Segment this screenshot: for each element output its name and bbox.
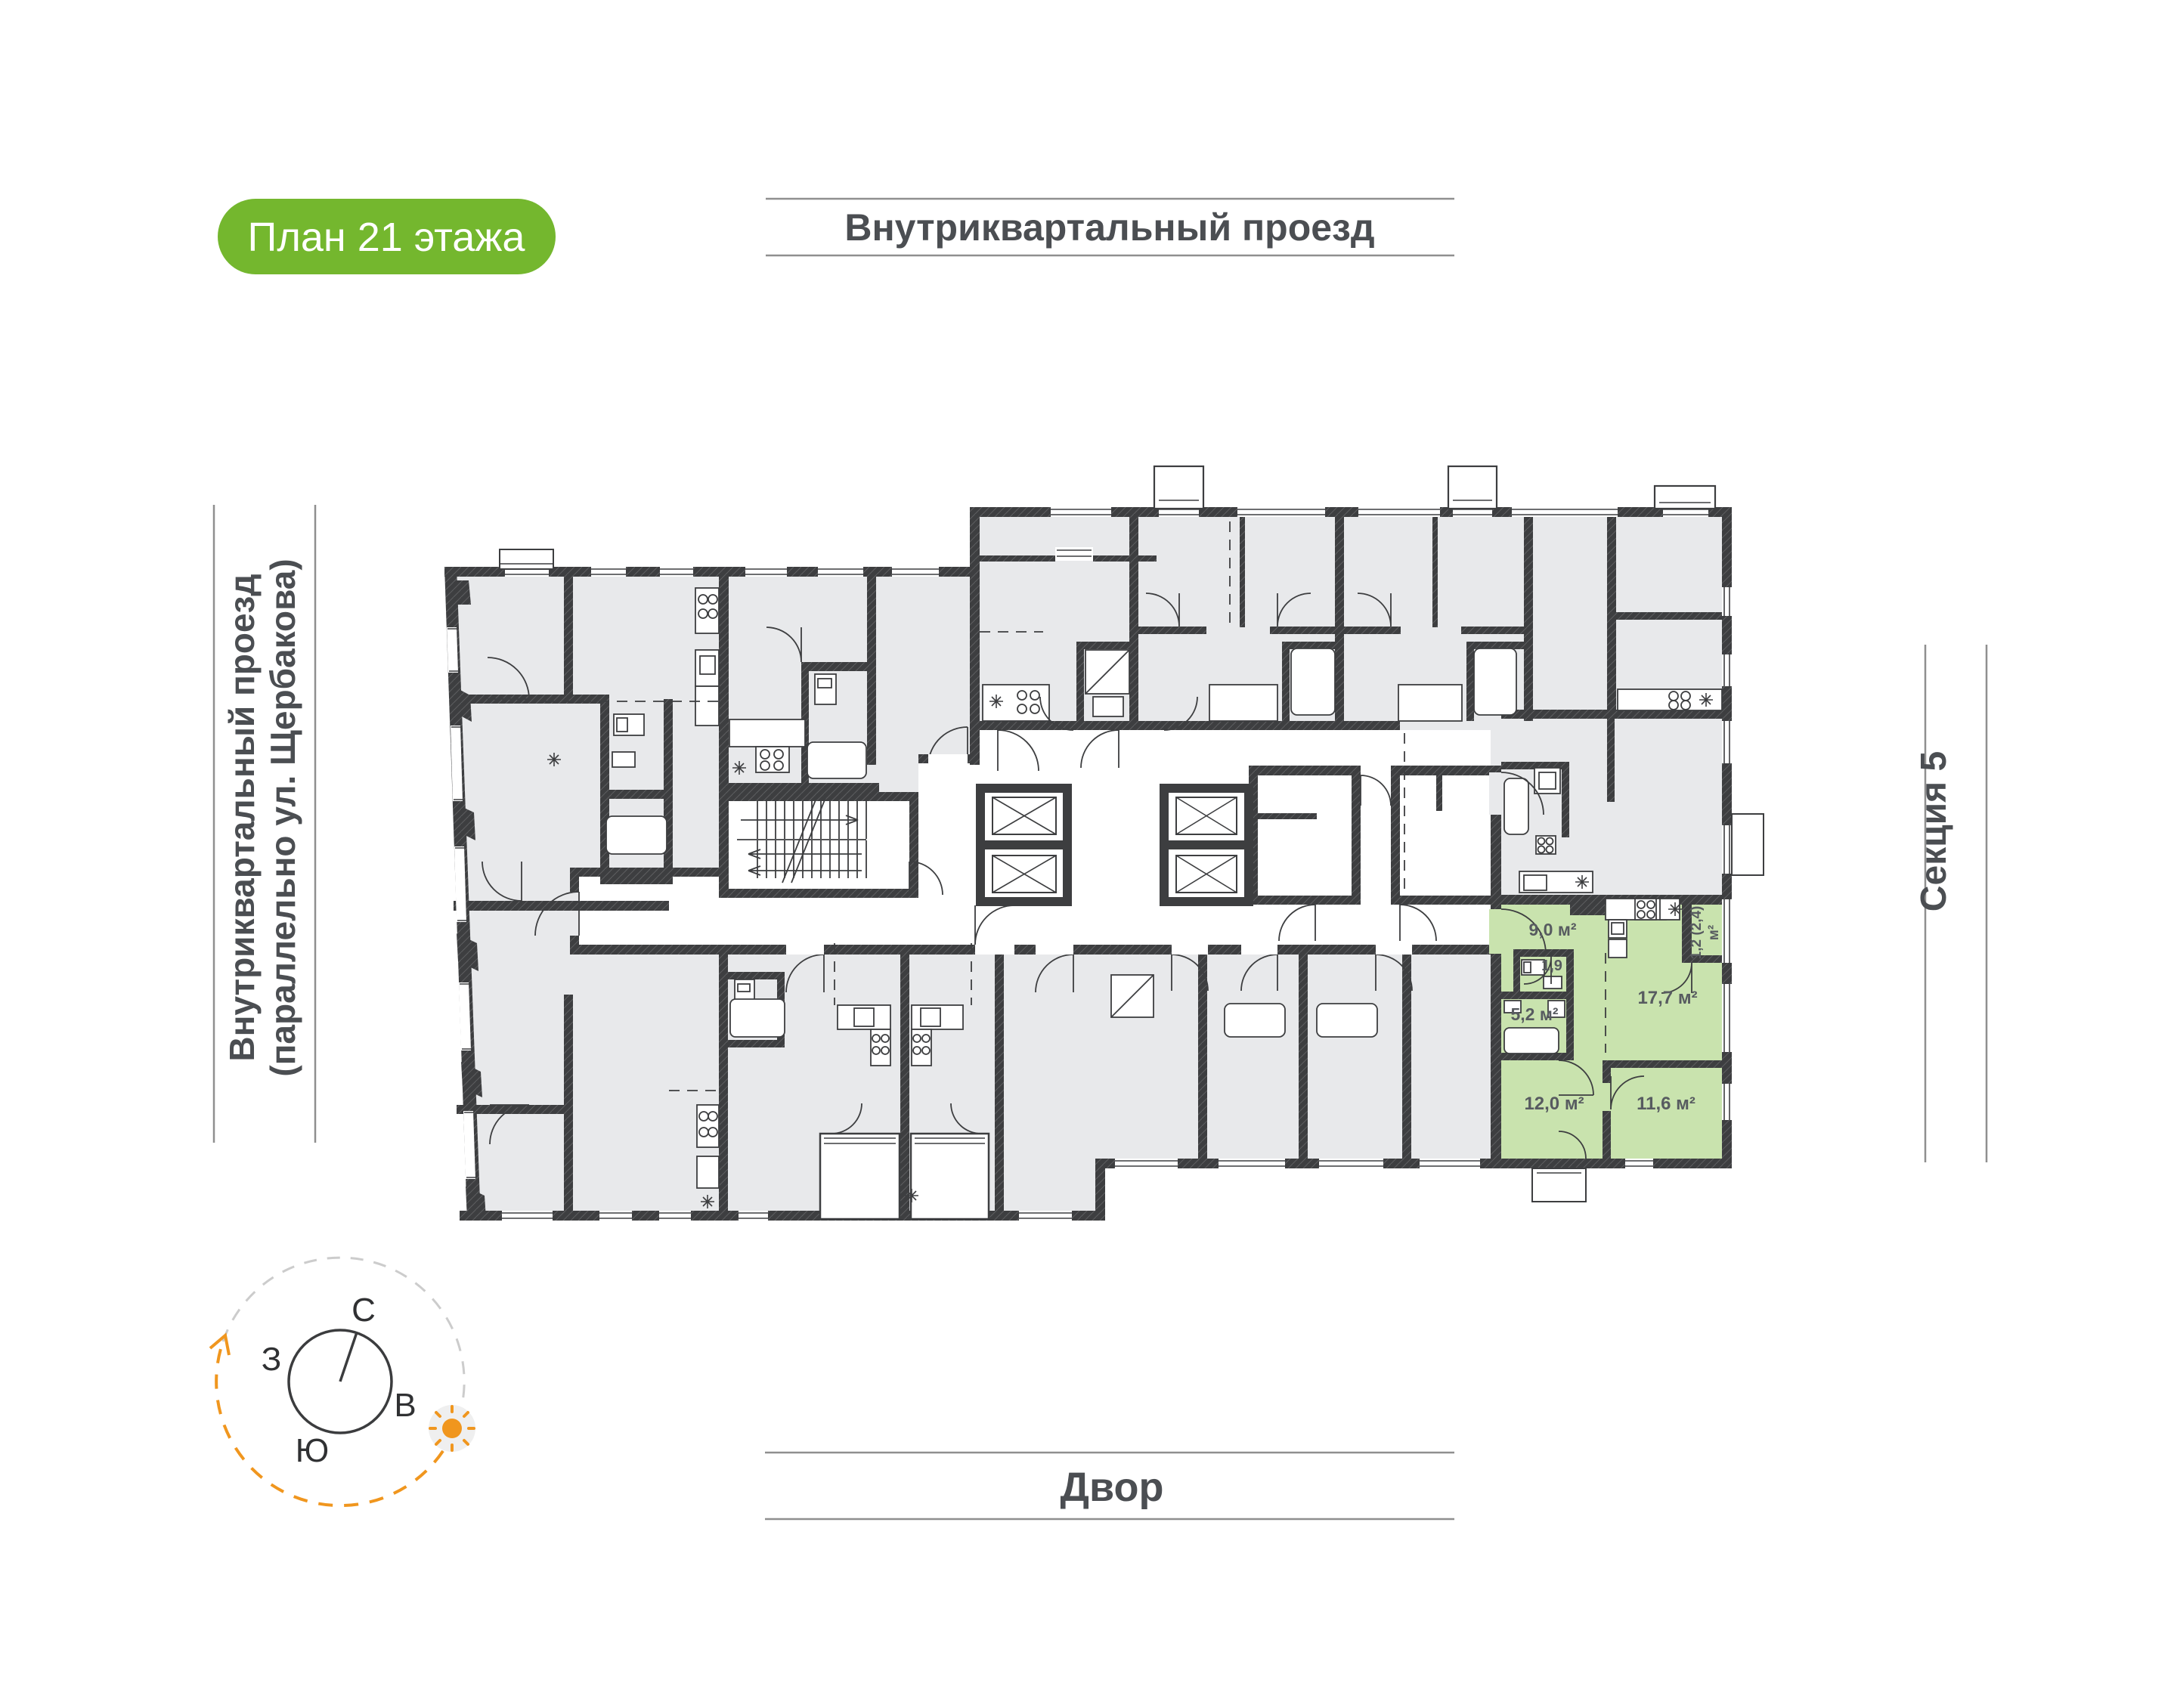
svg-text:Ю: Ю [296, 1432, 329, 1469]
svg-text:План 21 этажа: План 21 этажа [248, 215, 526, 260]
svg-text:(параллельно ул. Щербакова): (параллельно ул. Щербакова) [263, 559, 302, 1076]
svg-text:1,2 (2,4): 1,2 (2,4) [1689, 906, 1705, 960]
svg-text:11,6 м²: 11,6 м² [1637, 1094, 1695, 1114]
svg-text:С: С [351, 1292, 376, 1329]
svg-text:12,0 м²: 12,0 м² [1524, 1094, 1584, 1114]
svg-text:9,0 м²: 9,0 м² [1528, 920, 1576, 939]
svg-text:1,9: 1,9 [1541, 958, 1562, 974]
svg-text:Внутриквартальный проезд: Внутриквартальный проезд [222, 574, 262, 1061]
svg-text:В: В [394, 1387, 416, 1424]
svg-text:З: З [262, 1341, 282, 1378]
svg-text:Внутриквартальный проезд: Внутриквартальный проезд [844, 206, 1374, 249]
svg-text:5,2 м²: 5,2 м² [1510, 1004, 1558, 1024]
svg-text:Двор: Двор [1061, 1465, 1164, 1510]
svg-text:Секция 5: Секция 5 [1914, 751, 1954, 911]
svg-text:м²: м² [1706, 925, 1722, 940]
svg-text:17,7 м²: 17,7 м² [1637, 988, 1697, 1008]
